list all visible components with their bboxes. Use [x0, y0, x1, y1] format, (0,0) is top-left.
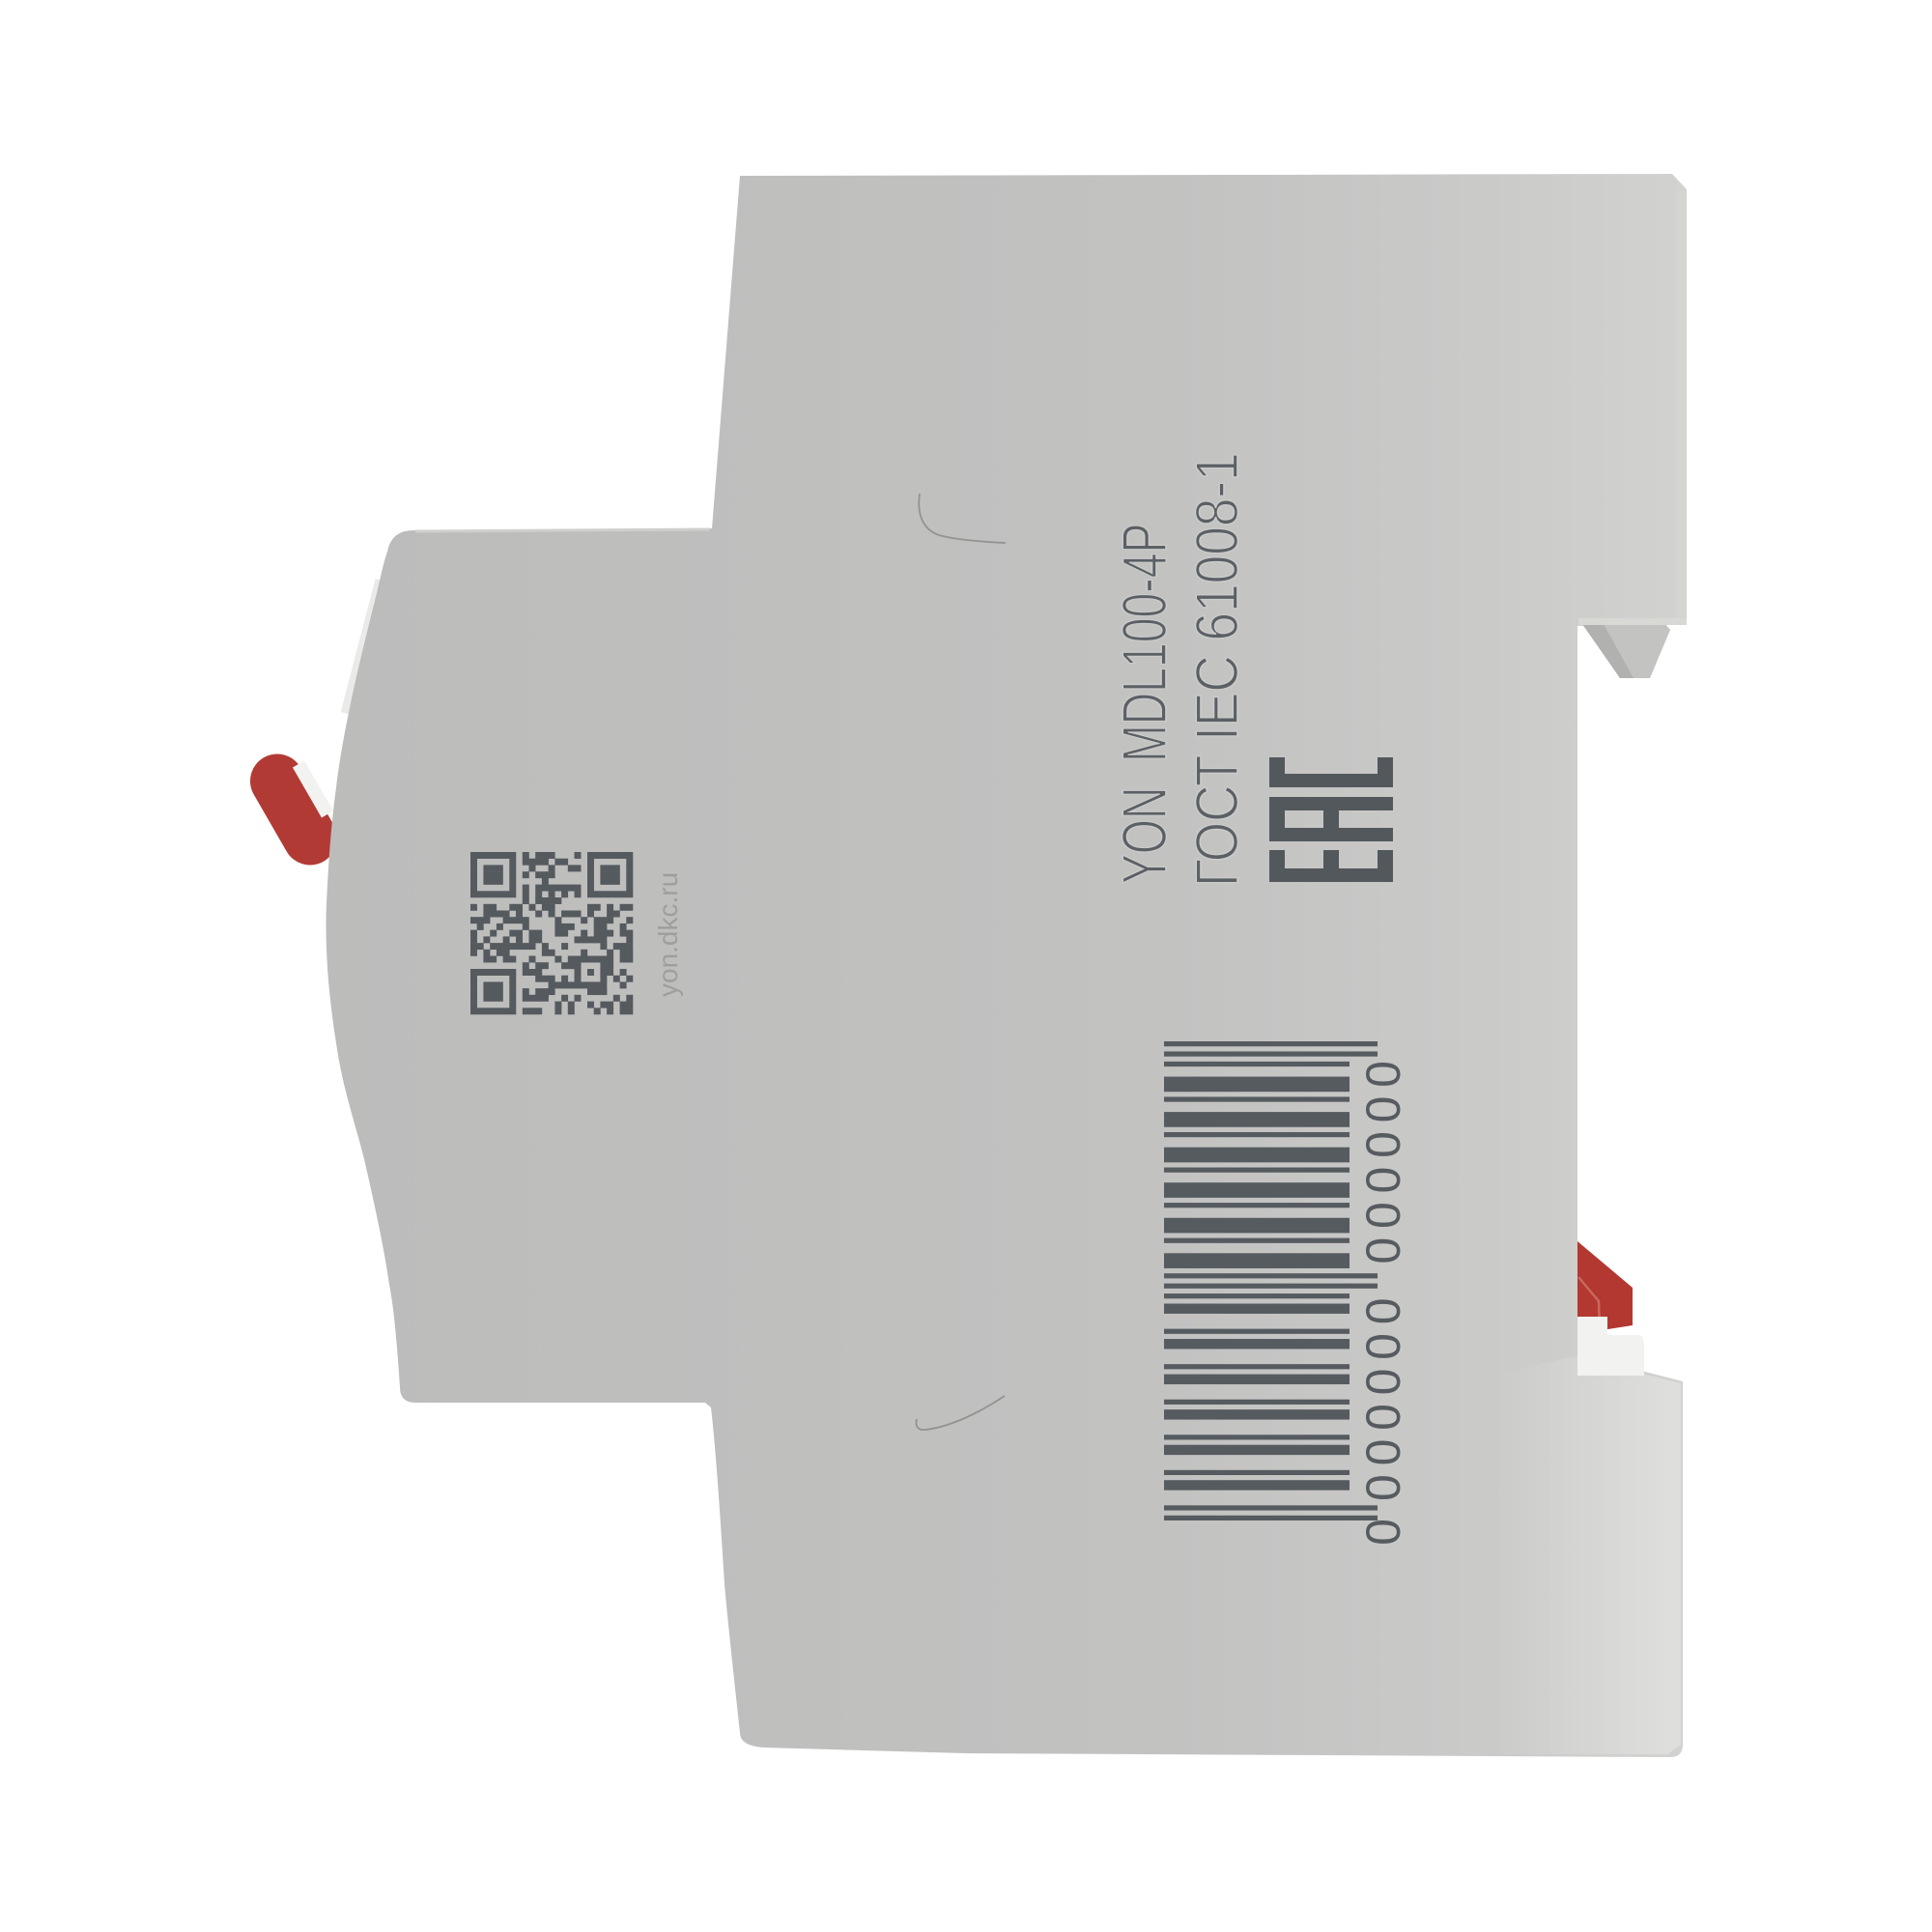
svg-text:0: 0: [1356, 1131, 1410, 1158]
svg-text:0: 0: [1356, 1474, 1410, 1501]
svg-text:YON MDL100-4P: YON MDL100-4P: [1109, 524, 1179, 884]
svg-text:0: 0: [1356, 1297, 1410, 1324]
svg-text:ГОСТ IEC 61008-1: ГОСТ IEC 61008-1: [1184, 452, 1251, 887]
svg-text:0: 0: [1356, 1096, 1410, 1123]
svg-text:0: 0: [1356, 1237, 1410, 1264]
svg-text:0: 0: [1356, 1061, 1410, 1088]
svg-text:0: 0: [1356, 1202, 1410, 1229]
svg-text:0: 0: [1356, 1404, 1410, 1431]
svg-text:0: 0: [1356, 1519, 1410, 1546]
svg-text:yon.dkc.ru: yon.dkc.ru: [653, 872, 683, 997]
svg-text:0: 0: [1356, 1333, 1410, 1360]
svg-text:0: 0: [1356, 1368, 1410, 1395]
svg-text:0: 0: [1356, 1439, 1410, 1466]
svg-text:0: 0: [1356, 1167, 1410, 1194]
